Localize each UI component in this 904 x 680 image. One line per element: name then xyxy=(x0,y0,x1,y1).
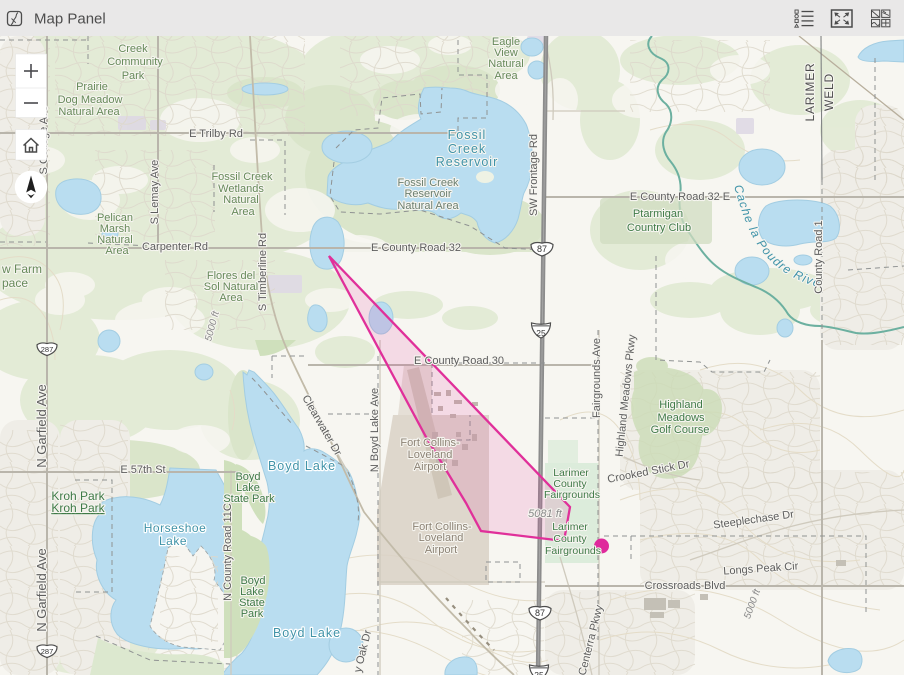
svg-text:87: 87 xyxy=(537,244,547,254)
svg-text:5081 ft: 5081 ft xyxy=(528,508,563,520)
svg-text:N Garfield Ave: N Garfield Ave xyxy=(34,384,49,468)
svg-text:Dog Meadow: Dog Meadow xyxy=(58,94,123,106)
svg-text:Natural: Natural xyxy=(488,58,523,70)
svg-text:Ptarmigan: Ptarmigan xyxy=(633,208,683,220)
svg-text:Natural Area: Natural Area xyxy=(397,200,459,212)
svg-text:Natural: Natural xyxy=(223,194,258,206)
svg-text:Creek: Creek xyxy=(118,43,148,55)
svg-text:Park: Park xyxy=(122,70,145,82)
svg-text:Carpenter Rd: Carpenter Rd xyxy=(142,241,208,253)
svg-text:County: County xyxy=(553,533,587,545)
svg-text:Highland: Highland xyxy=(659,399,702,411)
svg-text:E 57th St: E 57th St xyxy=(120,464,165,476)
svg-text:25: 25 xyxy=(536,328,546,338)
svg-text:S Lemay Ave: S Lemay Ave xyxy=(149,160,161,225)
svg-text:w Farm: w Farm xyxy=(1,262,42,276)
svg-text:E Trilby Rd: E Trilby Rd xyxy=(189,128,243,140)
svg-text:Crossroads Blvd: Crossroads Blvd xyxy=(645,580,726,592)
svg-text:E County Road 32: E County Road 32 xyxy=(371,242,461,254)
svg-text:Fairgrounds: Fairgrounds xyxy=(544,489,600,501)
svg-text:Golf Course: Golf Course xyxy=(651,424,710,436)
svg-text:E County Road 32 E: E County Road 32 E xyxy=(630,191,730,203)
svg-text:LARIMER: LARIMER xyxy=(803,63,817,122)
svg-text:Fairgrounds Ave: Fairgrounds Ave xyxy=(591,338,603,418)
svg-text:Area: Area xyxy=(494,70,518,82)
svg-text:WELD: WELD xyxy=(822,73,836,111)
svg-text:Kroh Park: Kroh Park xyxy=(51,501,105,515)
svg-text:Reservoir: Reservoir xyxy=(436,155,499,169)
svg-text:Horseshoe: Horseshoe xyxy=(144,521,207,535)
svg-text:Loveland: Loveland xyxy=(408,449,453,461)
svg-text:E County Road 30: E County Road 30 xyxy=(414,355,504,367)
svg-text:287: 287 xyxy=(41,647,54,656)
svg-text:287: 287 xyxy=(41,345,54,354)
svg-text:Area: Area xyxy=(231,206,255,218)
svg-text:Boyd Lake: Boyd Lake xyxy=(273,626,341,640)
svg-text:Prairie: Prairie xyxy=(76,81,108,93)
svg-text:Fossil: Fossil xyxy=(448,128,487,142)
svg-text:Creek: Creek xyxy=(448,142,486,156)
svg-text:Meadows: Meadows xyxy=(657,412,705,424)
svg-text:Fairgrounds: Fairgrounds xyxy=(545,545,601,557)
svg-text:Airport: Airport xyxy=(414,461,446,473)
svg-text:Area: Area xyxy=(219,292,243,304)
svg-text:Country Club: Country Club xyxy=(627,222,691,234)
svg-text:Boyd Lake: Boyd Lake xyxy=(268,459,336,473)
svg-text:Lake: Lake xyxy=(159,534,187,548)
svg-text:Area: Area xyxy=(105,245,129,257)
svg-text:Reservoir: Reservoir xyxy=(404,188,451,200)
svg-text:25: 25 xyxy=(534,670,544,675)
svg-text:Natural Area: Natural Area xyxy=(58,106,120,118)
svg-text:Fort Collins-: Fort Collins- xyxy=(400,437,460,449)
svg-text:Community: Community xyxy=(107,56,163,68)
svg-text:Airport: Airport xyxy=(425,544,457,556)
svg-text:Park: Park xyxy=(241,608,264,620)
svg-text:Fossil Creek: Fossil Creek xyxy=(211,171,273,183)
svg-text:S Timberline Rd: S Timberline Rd xyxy=(257,233,269,311)
svg-text:87: 87 xyxy=(535,608,545,618)
svg-text:Larimer: Larimer xyxy=(552,521,588,533)
svg-text:SW Frontage Rd: SW Frontage Rd xyxy=(528,134,540,216)
svg-text:N Boyd Lake Ave: N Boyd Lake Ave xyxy=(369,388,381,472)
svg-text:N Garfield Ave: N Garfield Ave xyxy=(34,548,49,632)
svg-text:Map Panel: Map Panel xyxy=(34,11,106,28)
svg-text:N County Road 11C: N County Road 11C xyxy=(222,503,234,601)
svg-text:pace: pace xyxy=(2,276,28,290)
svg-text:Loveland: Loveland xyxy=(419,532,464,544)
svg-text:County Road 1: County Road 1 xyxy=(813,220,825,293)
